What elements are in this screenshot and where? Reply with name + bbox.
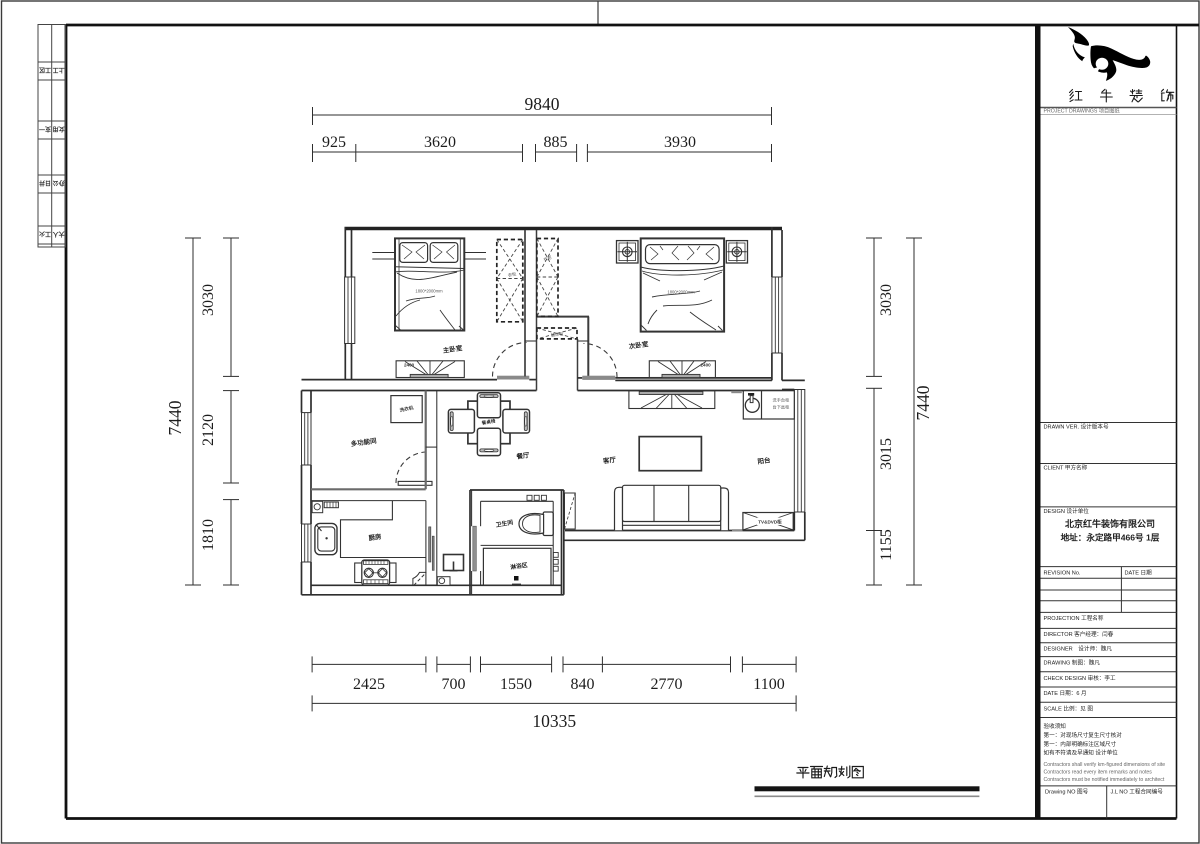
svg-text:Contractors shall verify km-fi: Contractors shall verify km-figured dime…: [1044, 762, 1166, 768]
svg-text:9840: 9840: [525, 94, 560, 114]
svg-text:上工: 上工: [53, 66, 65, 74]
svg-text:1800*2000mm: 1800*2000mm: [415, 289, 443, 294]
svg-text:工火: 工火: [38, 230, 51, 237]
svg-text:DESIGN 设计单位: DESIGN 设计单位: [1044, 507, 1090, 515]
svg-text:1155: 1155: [878, 529, 895, 560]
svg-text:885: 885: [544, 134, 568, 151]
svg-text:第一：对现场尺寸复生尺寸核对: 第一：对现场尺寸复生尺寸核对: [1044, 731, 1123, 739]
svg-text:7440: 7440: [165, 400, 185, 435]
svg-text:3030: 3030: [878, 284, 895, 316]
svg-text:北京红牛装饰有限公司: 北京红牛装饰有限公司: [1065, 518, 1155, 529]
svg-text:办公: 办公: [53, 179, 65, 187]
svg-text:1800*2000mm: 1800*2000mm: [667, 290, 695, 295]
svg-text:3930: 3930: [664, 134, 696, 151]
svg-text:2400: 2400: [404, 363, 415, 368]
svg-text:3015: 3015: [878, 438, 895, 470]
svg-text:2400: 2400: [701, 363, 712, 368]
svg-text:Drawing NO 图号: Drawing NO 图号: [1045, 788, 1089, 796]
svg-text:支一: 支一: [39, 125, 52, 133]
svg-text:第一：内部明确标注区域尺寸: 第一：内部明确标注区域尺寸: [1044, 740, 1117, 748]
svg-text:DRAWING 制图：魏凡: DRAWING 制图：魏凡: [1044, 659, 1101, 667]
svg-text:大人: 大人: [52, 230, 65, 238]
svg-text:DRAWN VER. 设计版本号: DRAWN VER. 设计版本号: [1044, 423, 1109, 431]
svg-text:工区: 工区: [39, 66, 51, 74]
svg-text:3620: 3620: [424, 134, 456, 151]
svg-text:日井: 日井: [39, 179, 51, 187]
svg-text:J.L NO 工程合同编号: J.L NO 工程合同编号: [1111, 788, 1164, 796]
svg-text:PROJECTION 工程名称: PROJECTION 工程名称: [1044, 614, 1104, 622]
svg-text:840: 840: [571, 676, 595, 693]
svg-text:CLIENT 甲方名称: CLIENT 甲方名称: [1044, 464, 1088, 472]
svg-text:7440: 7440: [913, 385, 933, 420]
svg-text:如有不符请及早通知 设计单位: 如有不符请及早通知 设计单位: [1044, 749, 1119, 757]
svg-text:洗手台柜: 洗手台柜: [773, 397, 790, 404]
svg-text:700: 700: [442, 676, 466, 693]
svg-text:1550: 1550: [500, 676, 532, 693]
svg-text:Contractors must be notified i: Contractors must be notified immediately…: [1044, 777, 1165, 783]
svg-text:925: 925: [322, 134, 346, 151]
svg-text:1810: 1810: [200, 519, 217, 551]
svg-text:PROJECT DRAWINGS 项目图纸: PROJECT DRAWINGS 项目图纸: [1044, 107, 1120, 115]
svg-text:DIRECTOR 客户经理：闫春: DIRECTOR 客户经理：闫春: [1044, 630, 1114, 638]
svg-text:3030: 3030: [200, 284, 217, 316]
svg-text:DESIGNER 设计师：魏凡: DESIGNER 设计师：魏凡: [1044, 645, 1113, 653]
svg-text:台下盆柜: 台下盆柜: [773, 404, 790, 411]
svg-text:10335: 10335: [532, 711, 576, 731]
svg-text:SCALE 比例：见 图: SCALE 比例：见 图: [1044, 705, 1094, 713]
svg-text:2120: 2120: [200, 414, 217, 446]
svg-text:CHECK DESIGN 审核：李工: CHECK DESIGN 审核：李工: [1044, 674, 1117, 682]
svg-text:REVISION No.: REVISION No.: [1044, 571, 1081, 577]
svg-text:DATE 日期: DATE 日期: [1125, 570, 1153, 577]
svg-text:女用: 女用: [53, 125, 65, 133]
svg-text:2425: 2425: [353, 676, 385, 693]
svg-text:TV&DVD柜: TV&DVD柜: [758, 519, 782, 526]
svg-text:DATE 日期：6 月: DATE 日期：6 月: [1044, 690, 1087, 697]
svg-text:地址：永定路甲466号 1层: 地址：永定路甲466号 1层: [1061, 532, 1160, 543]
svg-text:2770: 2770: [651, 676, 683, 693]
svg-text:1100: 1100: [753, 676, 784, 693]
svg-text:Contractors read every item re: Contractors read every item remarks and …: [1044, 770, 1153, 776]
svg-text:验收须知: 验收须知: [1044, 722, 1067, 730]
